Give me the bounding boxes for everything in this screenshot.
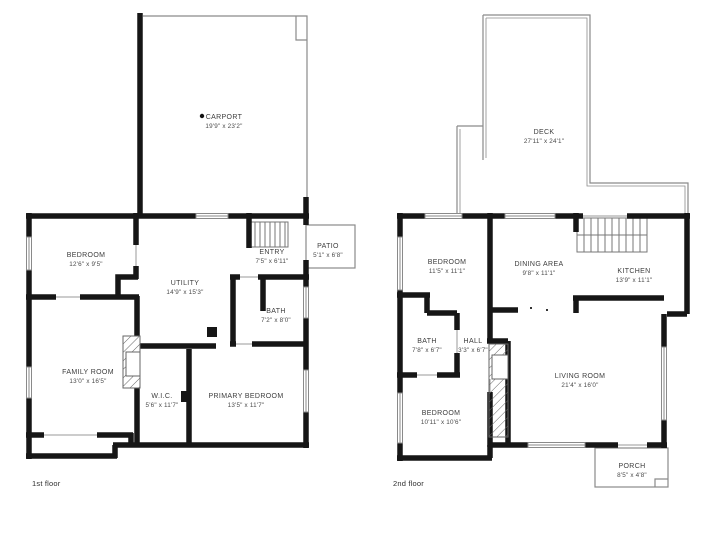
room-label-wic: W.I.C. 5'6" x 11'7" [146,392,179,410]
room-label-porch: PORCH 8'5" x 4'8" [617,462,647,480]
room-label-primary-bedroom: PRIMARY BEDROOM 13'5" x 11'7" [208,392,283,410]
carport-dot [200,114,204,118]
room-label-bedroom-1f: BEDROOM 12'6" x 9'5" [67,251,106,269]
door-tick [546,309,548,311]
room-label-dining-area: DINING AREA 9'8" x 11'1" [515,260,564,278]
room-label-family-room: FAMILY ROOM 13'0" x 16'5" [62,368,114,386]
room-label-patio: PATIO 5'1" x 6'8" [313,242,343,260]
room-label-carport: CARPORT 19'9" x 23'2" [205,113,242,131]
floor-label-first: 1st floor [32,479,60,488]
room-label-bedroom-2f-top: BEDROOM 11'5" x 11'1" [428,258,467,276]
room-label-bath-2f: BATH 7'8" x 6'7" [412,337,442,355]
floor-plan-drawing [0,0,720,539]
entry-stairs [250,222,288,247]
floor-plan-page: CARPORT 19'9" x 23'2" BEDROOM 12'6" x 9'… [0,0,720,539]
door-tick [530,307,532,309]
deck-outline [457,15,688,214]
utility-door-block [207,327,217,337]
first-floor-stairs [123,336,140,388]
wic-door-block [181,391,189,402]
second-floor-stairs-hall [489,344,508,437]
room-label-bath-1f: BATH 7'2" x 8'0" [261,307,291,325]
room-label-entry: ENTRY 7'5" x 6'11" [256,248,289,266]
floor-label-second: 2nd floor [393,479,424,488]
room-label-kitchen: KITCHEN 13'9" x 11'1" [616,267,653,285]
room-label-hall: HALL 3'3" x 6'7" [458,337,488,355]
room-label-bedroom-2f-bottom: BEDROOM 10'11" x 10'6" [421,409,461,427]
room-label-utility: UTILITY 14'9" x 15'3" [166,279,203,297]
first-floor-plan [26,13,355,459]
room-label-living-room: LIVING ROOM 21'4" x 16'0" [555,372,606,390]
room-label-deck: DECK 27'11" x 24'1" [524,128,564,146]
second-floor-stairs-top [577,218,647,252]
